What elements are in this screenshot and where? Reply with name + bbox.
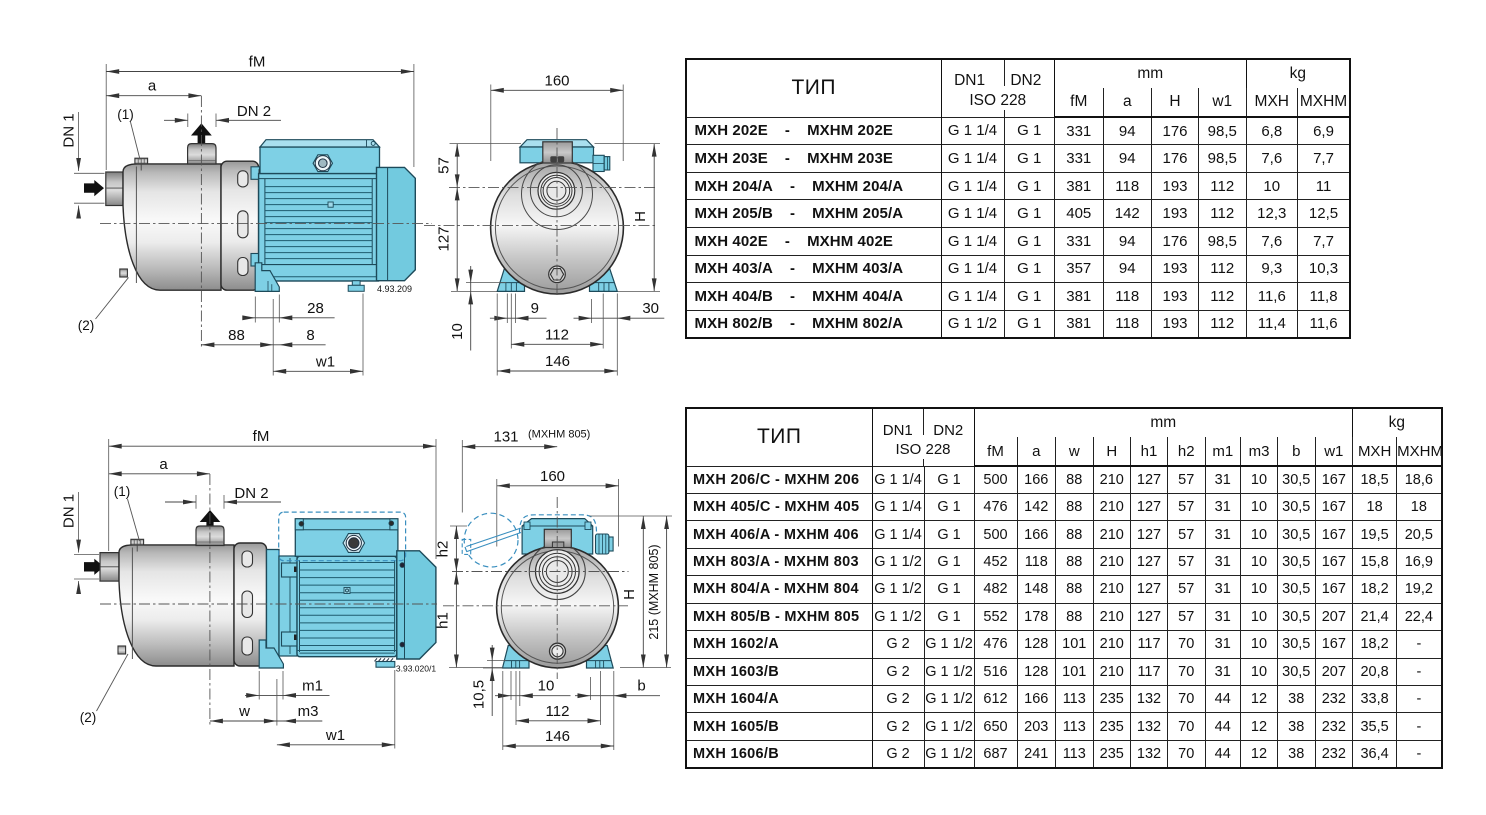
svg-text:DN 1: DN 1 [61, 113, 78, 147]
svg-text:57: 57 [436, 157, 453, 174]
svg-text:DN 2: DN 2 [234, 485, 268, 502]
svg-text:112: 112 [545, 326, 569, 343]
svg-text:(2): (2) [78, 318, 95, 333]
svg-text:146: 146 [545, 728, 570, 745]
svg-text:88: 88 [228, 327, 245, 344]
svg-text:160: 160 [544, 72, 569, 89]
svg-text:m3: m3 [298, 703, 319, 720]
svg-text:DN 2: DN 2 [237, 103, 271, 120]
svg-text:10,5: 10,5 [471, 680, 488, 709]
svg-text:30: 30 [642, 300, 659, 317]
svg-text:w1: w1 [315, 353, 335, 370]
svg-text:w1: w1 [325, 727, 345, 744]
svg-text:w: w [238, 703, 250, 720]
svg-text:215 (MXHM 805): 215 (MXHM 805) [647, 544, 661, 639]
svg-text:(1): (1) [117, 107, 134, 122]
svg-text:h1: h1 [435, 612, 452, 629]
svg-text:a: a [148, 78, 157, 95]
svg-text:112: 112 [546, 703, 570, 720]
svg-text:m1: m1 [302, 677, 323, 694]
svg-text:(1): (1) [114, 484, 131, 499]
svg-text:127: 127 [436, 226, 453, 251]
svg-text:h2: h2 [435, 541, 452, 558]
svg-text:a: a [159, 456, 168, 473]
svg-text:fM: fM [249, 54, 266, 71]
svg-text:160: 160 [540, 468, 565, 485]
svg-text:H: H [632, 211, 649, 222]
svg-text:(2): (2) [80, 710, 97, 725]
svg-text:28: 28 [307, 300, 324, 317]
svg-text:4.93.209: 4.93.209 [377, 284, 412, 294]
svg-text:fM: fM [253, 428, 270, 445]
svg-text:10: 10 [538, 678, 555, 695]
svg-text:(MXHM 805): (MXHM 805) [528, 429, 590, 441]
svg-text:131: 131 [493, 429, 518, 446]
svg-text:146: 146 [545, 353, 570, 370]
svg-text:H: H [621, 589, 638, 600]
svg-text:10: 10 [449, 323, 466, 340]
svg-text:DN 1: DN 1 [61, 494, 78, 528]
svg-text:8: 8 [306, 327, 314, 344]
svg-text:3.93.020/1: 3.93.020/1 [396, 664, 436, 674]
svg-text:9: 9 [531, 300, 539, 317]
svg-text:b: b [637, 678, 645, 695]
